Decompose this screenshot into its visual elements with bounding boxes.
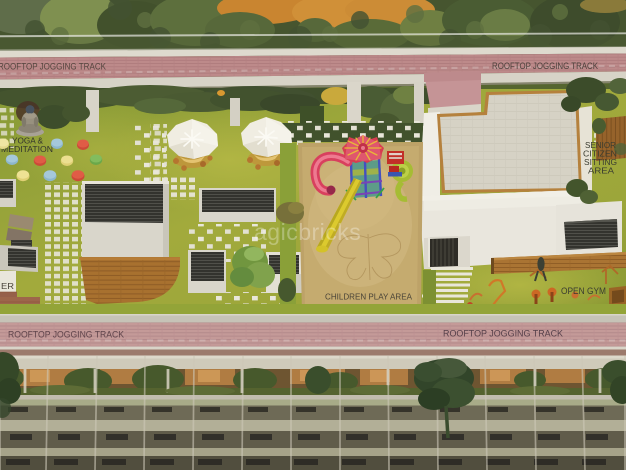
svg-text:AREA: AREA [588,167,615,176]
svg-text:MEDITATION: MEDITATION [1,144,53,154]
svg-text:CHILDREN PLAY AREA: CHILDREN PLAY AREA [325,292,412,302]
svg-text:ER: ER [1,282,14,291]
svg-text:ROOFTOP JOGGING TRACK: ROOFTOP JOGGING TRACK [8,329,125,340]
svg-text:ROOFTOP JOGGING TRACK: ROOFTOP JOGGING TRACK [443,328,564,339]
svg-text:ROOFTOP JOGGING TRACK: ROOFTOP JOGGING TRACK [0,62,106,72]
svg-text:OPEN GYM: OPEN GYM [561,286,606,296]
svg-text:agicbricks: agicbricks [254,219,361,245]
svg-text:ROOFTOP JOGGING TRACK: ROOFTOP JOGGING TRACK [492,61,598,71]
